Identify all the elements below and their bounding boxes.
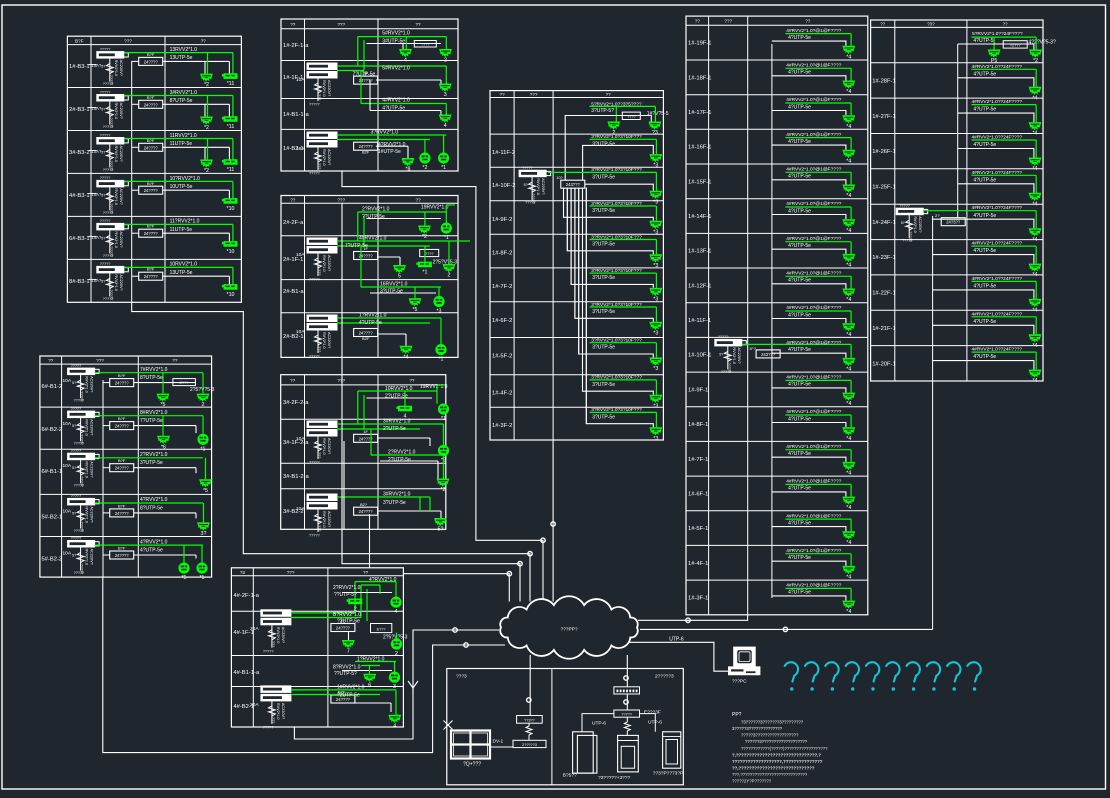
svg-text:?????: ????? [74, 442, 85, 446]
svg-text:RVV2*1.0: RVV2*1.0 [114, 188, 118, 205]
svg-text:???: ??? [271, 641, 275, 647]
svg-text:10A?: 10A? [92, 278, 102, 283]
svg-text:4?UTP-5e: 4?UTP-5e [788, 70, 811, 76]
svg-text:6#-B1-1: 6#-B1-1 [42, 469, 63, 475]
svg-text:3?RVV2*1.0?3?10F???: 3?RVV2*1.0?3?10F??? [591, 407, 642, 413]
svg-text:2#-2F-a: 2#-2F-a [283, 220, 304, 226]
svg-text:?????: ????? [103, 168, 114, 172]
svg-text:RVV2*1.0: RVV2*1.0 [276, 703, 280, 720]
svg-text:?????2Y?P???????: ?????2Y?P??????? [732, 779, 772, 784]
svg-text:4?UTP-5e: 4?UTP-5e [973, 142, 996, 148]
svg-text:4?RVV2*1.0: 4?RVV2*1.0 [140, 539, 168, 545]
svg-text:?????: ????? [309, 172, 320, 176]
svg-text:2?RVV2*1.0: 2?RVV2*1.0 [333, 585, 361, 591]
svg-text:RVV2*1.0: RVV2*1.0 [85, 506, 89, 523]
svg-text:3?UTP-5e: 3?UTP-5e [592, 345, 615, 351]
svg-text:*4: *4 [846, 193, 851, 199]
svg-text:3?RVV2*1.0?3?10F???: 3?RVV2*1.0?3?10F??? [591, 338, 642, 344]
svg-text:E???3F: E???3F [644, 709, 661, 715]
svg-text:4?UTP-5e: 4?UTP-5e [973, 71, 996, 77]
svg-text:?3?: ?3? [927, 22, 935, 27]
svg-text:3#RVV2*1.0: 3#RVV2*1.0 [170, 90, 198, 96]
svg-text:B2?: B2? [360, 502, 368, 507]
svg-text:AC220V?: AC220V? [90, 549, 94, 565]
svg-text:?????: ????? [103, 211, 114, 215]
svg-text:2?UTP-5e: 2?UTP-5e [383, 426, 406, 432]
svg-text:?????: ????? [902, 239, 913, 243]
svg-text:???: ??? [317, 346, 321, 352]
svg-text:4?UTP-5: 4?UTP-5 [973, 38, 993, 44]
svg-text:1#-25F-1: 1#-25F-1 [872, 185, 896, 191]
svg-text:1#-7F-2: 1#-7F-2 [492, 284, 512, 290]
svg-text:5?: 5? [101, 151, 105, 155]
svg-text:4?RVV2*1.0: 4?RVV2*1.0 [378, 142, 406, 148]
svg-text:5?: 5? [72, 381, 76, 385]
svg-text:AC220V?: AC220V? [327, 149, 331, 165]
svg-text:20A: 20A [250, 702, 259, 708]
svg-text:1#-6F-2: 1#-6F-2 [492, 318, 512, 324]
svg-text:1#-B3-1: 1#-B3-1 [69, 64, 90, 70]
svg-text:*4: *4 [1032, 343, 1037, 349]
svg-text:?????: ????? [309, 103, 320, 107]
svg-text:4?UTP-5e: 4?UTP-5e [788, 139, 811, 145]
svg-text:1#-13F-1: 1#-13F-1 [688, 249, 712, 255]
svg-text:5#-B2-1: 5#-B2-1 [42, 514, 63, 520]
svg-text:AC220V?: AC220V? [327, 332, 331, 348]
svg-text:4?UTP-5e: 4?UTP-5e [973, 107, 996, 113]
svg-text:8?UTP-5e: 8?UTP-5e [140, 505, 163, 511]
svg-text:5?: 5? [719, 352, 723, 356]
svg-text:??,???????????????????????????: ??,????????????????????????????? [732, 766, 815, 771]
svg-text:?????: ????? [74, 571, 85, 575]
svg-text:3?RVV2*1.0?3?10F???: 3?RVV2*1.0?3?10F??? [591, 302, 642, 308]
svg-text:4#RVV2*1.0?@1@F????: 4#RVV2*1.0?@1@F???? [786, 167, 841, 173]
svg-text:4#RVV2*1.0??24F????: 4#RVV2*1.0??24F???? [972, 241, 1023, 247]
svg-text:AC220V?: AC220V? [327, 255, 331, 271]
svg-text:5?: 5? [101, 108, 105, 112]
svg-text:?????: ????? [718, 335, 729, 339]
svg-text:*4: *4 [846, 263, 851, 269]
svg-text:*11: *11 [227, 81, 235, 87]
svg-text:4#RVV2*1.0??24F????: 4#RVV2*1.0??24F???? [972, 135, 1023, 141]
svg-text:3#-B3-2: 3#-B3-2 [69, 150, 90, 156]
svg-text:10UTP-5e: 10UTP-5e [170, 184, 193, 190]
svg-text:B2F: B2F [362, 150, 370, 155]
svg-text:?????: ????? [100, 133, 111, 137]
svg-text:???: ??? [317, 452, 321, 458]
svg-text:7#RVV2*1.0: 7#RVV2*1.0 [140, 367, 168, 373]
svg-text:*11: *11 [227, 167, 235, 173]
svg-text:4?UTP-5e: 4?UTP-5e [973, 284, 996, 290]
svg-text:24?3??: 24?3?? [946, 220, 961, 225]
svg-text:4#-B1-1-a: 4#-B1-1-a [233, 670, 260, 676]
svg-text:4#RVV2*1.0??24F????: 4#RVV2*1.0??24F???? [972, 347, 1023, 353]
svg-text:*4: *4 [846, 401, 851, 407]
svg-text:10A: 10A [63, 421, 72, 427]
svg-text:4#RVV2*1.0: 4#RVV2*1.0 [359, 235, 387, 241]
svg-text:?????: ????? [522, 166, 533, 170]
svg-text:2?????3: 2?????3 [522, 743, 537, 747]
svg-text:24????: 24???? [115, 553, 130, 558]
svg-text:AC220V?: AC220V? [119, 231, 123, 247]
svg-text:??: ?? [290, 197, 296, 202]
svg-text:20A: 20A [250, 626, 259, 632]
svg-text:AC220V?: AC220V? [90, 461, 94, 477]
svg-text:6: 6 [368, 682, 371, 688]
svg-text:RVV2*1.0: RVV2*1.0 [114, 231, 118, 248]
svg-text:24????: 24???? [359, 144, 374, 149]
svg-text:5#RVV2*1.0: 5#RVV2*1.0 [382, 66, 410, 72]
svg-text:?????: ????? [74, 484, 85, 488]
svg-text:19RVV2*1.0: 19RVV2*1.0 [421, 205, 449, 211]
svg-text:1#-3F-2: 1#-3F-2 [492, 423, 512, 429]
svg-text:*3: *3 [653, 163, 658, 169]
svg-text:13UTP-5e: 13UTP-5e [170, 55, 193, 61]
svg-text:4#RVV2*1.0?@1@F????: 4#RVV2*1.0?@1@F???? [786, 409, 841, 415]
svg-text:?Q+???: ?Q+??? [463, 762, 481, 768]
svg-text:*1: *1 [199, 575, 204, 581]
svg-text:3?UTP-5e: 3?UTP-5e [592, 309, 615, 315]
svg-text:??: ?? [409, 378, 415, 383]
svg-text:?????: ????? [103, 254, 114, 258]
svg-text:3#-2F-2-a: 3#-2F-2-a [283, 400, 309, 406]
svg-text:*4: *4 [1032, 201, 1037, 207]
svg-text:RVV2*1.0: RVV2*1.0 [85, 549, 89, 566]
svg-text:243???: 243??? [761, 352, 776, 357]
svg-text:B?F: B?F [118, 373, 126, 378]
svg-text:?????: ????? [71, 494, 82, 498]
svg-text:B?RVV2*1.0: B?RVV2*1.0 [333, 612, 361, 618]
svg-text:???: ??? [337, 22, 345, 27]
svg-text:4?UTP-5e: 4?UTP-5e [788, 278, 811, 284]
svg-text:3#RVV2*1.0: 3#RVV2*1.0 [383, 418, 411, 424]
svg-text:24????: 24???? [336, 626, 351, 631]
svg-text:*2: *2 [204, 125, 209, 131]
svg-text:AC220V?: AC220V? [119, 60, 123, 76]
svg-text:10RVV2*1.0: 10RVV2*1.0 [170, 262, 198, 268]
svg-text:???,??????????????????????????: ???,???????????????????????????? [732, 772, 808, 777]
svg-text:???: ??? [317, 163, 321, 169]
svg-text:RVV2*1.0: RVV2*1.0 [322, 332, 326, 349]
svg-text:AC220V?: AC220V? [119, 146, 123, 162]
svg-text:1#-23F-1: 1#-23F-1 [872, 255, 896, 261]
svg-text:5?: 5? [101, 236, 105, 240]
svg-text:11RVV2*1.0: 11RVV2*1.0 [170, 133, 197, 139]
svg-text:10A: 10A [63, 551, 72, 557]
svg-text:3: 3 [393, 684, 396, 690]
svg-text:1?RVV2*1.0: 1?RVV2*1.0 [359, 312, 387, 318]
svg-text:3?RVV2*1.0?3?10F???: 3?RVV2*1.0?3?10F??? [591, 134, 642, 140]
svg-text:RVV2*1.0: RVV2*1.0 [732, 347, 736, 364]
svg-text:5?: 5? [72, 554, 76, 558]
svg-text:4#RVV2*1.0??24F????: 4#RVV2*1.0??24F???? [972, 311, 1023, 317]
svg-text:6#-B3-1: 6#-B3-1 [69, 236, 90, 242]
svg-text:RVV2*1.0: RVV2*1.0 [913, 216, 917, 233]
svg-text:???: ??? [271, 717, 275, 723]
svg-text:RVV2*1.0: RVV2*1.0 [322, 80, 326, 97]
svg-text:2?: 2? [935, 213, 940, 218]
svg-text:*10: *10 [227, 249, 235, 255]
svg-text:8#-B3-1: 8#-B3-1 [69, 279, 90, 285]
svg-text:RVV2*1.0: RVV2*1.0 [85, 461, 89, 478]
svg-text:4#RVV2*1.0: 4#RVV2*1.0 [382, 97, 410, 103]
svg-text:????: ???? [425, 252, 433, 256]
svg-text:24????: 24???? [115, 466, 130, 471]
svg-text:*10: *10 [227, 292, 235, 298]
svg-text:4?UTP-5e: 4?UTP-5e [788, 174, 811, 180]
svg-text:4?UTP-5e: 4?UTP-5e [788, 416, 811, 422]
svg-text:??7??: ??7?? [621, 713, 632, 717]
svg-text:AC220V?: AC220V? [281, 627, 285, 643]
svg-text:??: ?? [415, 22, 421, 27]
svg-text:*1: *1 [438, 357, 443, 363]
svg-text:?????: ????? [100, 262, 111, 266]
svg-text:5?: 5? [72, 466, 76, 470]
svg-text:???: ??? [287, 570, 295, 575]
svg-text:???3: ???3 [456, 674, 467, 680]
svg-text:?????: ????? [103, 125, 114, 129]
svg-text:*1: *1 [200, 446, 205, 452]
svg-text:3?UTP-5e: 3?UTP-5e [592, 174, 615, 180]
svg-text:???: ??? [317, 94, 321, 100]
svg-text:?????: ????? [309, 278, 320, 282]
svg-text:1#-20F-1: 1#-20F-1 [872, 361, 896, 367]
svg-text:4?UTP-5e: 4?UTP-5e [788, 520, 811, 526]
svg-text:??: ?? [805, 19, 811, 24]
svg-text:4#RVV2*1.0??24F????: 4#RVV2*1.0??24F???? [972, 64, 1023, 70]
svg-text:???: ??? [317, 525, 321, 531]
svg-text:*4: *4 [846, 54, 851, 60]
svg-text:1#-8F-1: 1#-8F-1 [688, 422, 708, 428]
svg-text:?3: ?3 [240, 570, 246, 575]
svg-text:3?RVV2*1.0?3?10F???: 3?RVV2*1.0?3?10F??? [591, 234, 642, 240]
svg-text:10RVV2*1.0: 10RVV2*1.0 [385, 386, 413, 392]
svg-text:4#-2F-1-a: 4#-2F-1-a [233, 593, 259, 599]
svg-text:6#-B2-2: 6#-B2-2 [42, 427, 63, 433]
svg-text:1#-9F-1: 1#-9F-1 [688, 387, 708, 393]
svg-text:1#-12F-1: 1#-12F-1 [688, 283, 712, 289]
svg-text:B?F: B?F [118, 416, 126, 421]
svg-text:4#-B3-1: 4#-B3-1 [69, 193, 90, 199]
svg-text:4?UTP-5e: 4?UTP-5e [788, 555, 811, 561]
svg-text:*2: *2 [440, 487, 445, 493]
svg-text:3: 3 [444, 92, 447, 98]
svg-text:4#RVV2*1.0?@1@F????: 4#RVV2*1.0?@1@F???? [786, 63, 841, 69]
svg-text:*5: *5 [181, 575, 186, 581]
svg-text:DV-1: DV-1 [493, 739, 504, 745]
svg-text:UTP-6: UTP-6 [669, 637, 684, 643]
svg-text:4#RVV2*1.0?@1@F????: 4#RVV2*1.0?@1@F???? [786, 132, 841, 138]
svg-text:AC220V?: AC220V? [737, 347, 741, 363]
svg-text:?????: ????? [74, 529, 85, 533]
svg-text:*4: *4 [1032, 95, 1037, 101]
svg-text:?????: ????? [71, 536, 82, 540]
svg-text:2#-B1-a: 2#-B1-a [283, 289, 304, 295]
svg-text:4: 4 [393, 723, 396, 729]
svg-text:?????: ????? [899, 204, 910, 208]
svg-text:4#RVV2*1.0?@1@F????: 4#RVV2*1.0?@1@F???? [786, 236, 841, 242]
svg-text:???PC: ???PC [732, 679, 747, 685]
svg-text:2?UTP-5e: 2?UTP-5e [388, 457, 411, 463]
svg-text:1#-B1-1-a: 1#-B1-1-a [283, 112, 310, 118]
svg-text:*3: *3 [436, 309, 441, 315]
svg-text:4?RVV2*1.0: 4?RVV2*1.0 [140, 497, 168, 503]
svg-text:??: ?? [290, 22, 296, 27]
svg-text:4?UTP-5e: 4?UTP-5e [788, 382, 811, 388]
svg-text:24????: 24???? [115, 424, 130, 429]
svg-text:??: ?? [201, 38, 207, 43]
svg-text:10A?: 10A? [92, 235, 102, 240]
svg-text:10?: 10? [556, 175, 563, 180]
svg-text:8?RVV2*1.0: 8?RVV2*1.0 [333, 664, 361, 670]
svg-text:1#-14F-1: 1#-14F-1 [688, 214, 712, 220]
svg-text:5?RVV2*1.0??24F????: 5?RVV2*1.0??24F???? [972, 31, 1023, 37]
svg-text:*2: *2 [1033, 58, 1038, 64]
svg-text:5?: 5? [524, 183, 528, 187]
svg-text:1#-10F-1: 1#-10F-1 [688, 353, 712, 359]
svg-text:1#-17F-1: 1#-17F-1 [688, 110, 712, 116]
svg-text:1#-18F-1: 1#-18F-1 [688, 75, 712, 81]
svg-text:3?: 3? [201, 531, 207, 537]
svg-text:*3: *3 [653, 263, 658, 269]
svg-text:1#-26F-1: 1#-26F-1 [872, 149, 896, 155]
svg-text:1#-11F-1: 1#-11F-1 [688, 318, 711, 324]
svg-text:5: 5 [398, 274, 401, 280]
svg-text:10A: 10A [63, 463, 72, 469]
svg-text:??: ?? [363, 570, 369, 575]
svg-text:4?UTP-5e: 4?UTP-5e [788, 590, 811, 596]
svg-text:1#-15F-1: 1#-15F-1 [688, 179, 712, 185]
svg-text:4#RVV2*1.0??24F????: 4#RVV2*1.0??24F???? [972, 276, 1023, 282]
svg-text:4?UTP-5e: 4?UTP-5e [973, 177, 996, 183]
svg-text:4#RVV2*1.0?@1@F????: 4#RVV2*1.0?@1@F???? [786, 375, 841, 381]
svg-text:4?UTP-5e: 4?UTP-5e [973, 319, 996, 325]
svg-text:B?F: B?F [118, 458, 126, 463]
svg-text:??????3???????????????????: ??????3??????????????????? [745, 739, 808, 744]
svg-text:1#-16F-1: 1#-16F-1 [688, 145, 712, 151]
svg-text:4#RVV2*1.0?@1@F????: 4#RVV2*1.0?@1@F???? [786, 513, 841, 519]
svg-text:10A: 10A [63, 378, 72, 384]
svg-text:*4: *4 [846, 609, 851, 615]
svg-text:???: ??? [337, 197, 345, 202]
svg-text:?????: ????? [74, 399, 85, 403]
svg-text:AC220V?: AC220V? [119, 274, 123, 290]
svg-text:3#UTP-5e: 3#UTP-5e [382, 38, 405, 44]
svg-text:13UTP-5e: 13UTP-5e [170, 270, 193, 276]
svg-text:*4: *4 [846, 505, 851, 511]
svg-text:4?UTP-5e: 4?UTP-5e [788, 243, 811, 249]
svg-text:*4: *4 [846, 89, 851, 95]
svg-text:5#-B2-2: 5#-B2-2 [42, 557, 63, 563]
svg-text:?????: ????? [100, 176, 111, 180]
svg-text:B?F: B?F [118, 503, 126, 508]
svg-text:24????: 24???? [144, 59, 159, 64]
svg-text:4: 4 [444, 123, 447, 129]
svg-text:*1: *1 [441, 165, 446, 171]
svg-text:4: 4 [395, 609, 398, 615]
svg-text:*4: *4 [846, 332, 851, 338]
svg-text:RVV2*1.0: RVV2*1.0 [322, 149, 326, 166]
svg-text:?????: ????? [100, 90, 111, 94]
svg-text:*3: *3 [653, 297, 658, 303]
svg-text:B?F: B?F [118, 546, 126, 551]
svg-text:AC220V?: AC220V? [90, 376, 94, 392]
svg-text:??UTP-5?: ??UTP-5? [334, 671, 357, 677]
svg-text:?3?????+3???: ?3?????+3??? [598, 775, 630, 781]
svg-text:3?UTP-5e: 3?UTP-5e [592, 141, 615, 147]
svg-text:3?RVV2*1.0?3?10F???: 3?RVV2*1.0?3?10F??? [591, 201, 642, 207]
svg-text:2?RVV2*1.0: 2?RVV2*1.0 [140, 452, 168, 458]
svg-text:UTP-6: UTP-6 [592, 721, 606, 727]
svg-text:*3: *3 [653, 330, 658, 336]
svg-text:*4: *4 [846, 575, 851, 581]
svg-text:?????: ????? [71, 449, 82, 453]
svg-text:24????: 24???? [115, 381, 130, 386]
svg-text:*4: *4 [1032, 378, 1037, 384]
svg-text:10A: 10A [296, 146, 305, 152]
svg-text:11UTP-5e: 11UTP-5e [170, 227, 193, 233]
svg-text:2?RVV2*1.0: 2?RVV2*1.0 [388, 450, 416, 456]
svg-text:RVV2*1.0: RVV2*1.0 [322, 511, 326, 528]
svg-text:*4: *4 [846, 158, 851, 164]
svg-text:10A?: 10A? [92, 106, 102, 111]
svg-text:?????: ????? [263, 725, 274, 729]
svg-text:8?UTP-5e: 8?UTP-5e [170, 98, 193, 104]
svg-text:10A: 10A [296, 506, 305, 512]
svg-text:1#-11F-2: 1#-11F-2 [492, 150, 515, 156]
svg-text:10A?: 10A? [92, 63, 102, 68]
svg-text:*4: *4 [846, 297, 851, 303]
svg-text:AC220V?: AC220V? [281, 703, 285, 719]
svg-text:*4: *4 [1032, 131, 1037, 137]
svg-text:?????: ????? [71, 364, 82, 368]
svg-text:4?UTP-5e: 4?UTP-5e [973, 213, 996, 219]
svg-text:*4: *4 [403, 354, 408, 360]
svg-text:RVV2*1.0: RVV2*1.0 [114, 146, 118, 163]
svg-text:7?UTP-5e: 7?UTP-5e [140, 418, 163, 424]
svg-text:*2: *2 [204, 168, 209, 174]
svg-text:4#RVV2*1.0?@1@F????: 4#RVV2*1.0?@1@F???? [786, 28, 841, 34]
svg-text:*1: *1 [444, 235, 449, 241]
svg-text:4?UTP-5e: 4?UTP-5e [788, 104, 811, 110]
svg-text:1#UTP-5e: 1#UTP-5e [378, 149, 401, 155]
svg-text:???: ??? [337, 378, 345, 383]
svg-text:5?: 5? [438, 527, 444, 533]
svg-text:1#-19F-1: 1#-19F-1 [688, 41, 712, 47]
svg-text:4#RVV2*1.0?@1@F????: 4#RVV2*1.0?@1@F???? [786, 201, 841, 207]
svg-text:B?5??: B?5?? [563, 773, 577, 779]
svg-text:3#-B1-2-a: 3#-B1-2-a [283, 474, 310, 480]
svg-text:AC220V?: AC220V? [918, 216, 922, 232]
svg-text:*4: *4 [846, 367, 851, 373]
svg-text:AC220V?: AC220V? [541, 178, 545, 194]
svg-text:2: 2 [202, 402, 205, 408]
svg-text:7?UTP-5e: 7?UTP-5e [345, 243, 368, 249]
svg-text:*4: *4 [1032, 237, 1037, 243]
svg-text:1#-8F-2: 1#-8F-2 [492, 250, 512, 256]
svg-text:4#RVV2*1.0?@1@F????: 4#RVV2*1.0?@1@F???? [786, 444, 841, 450]
svg-text:RVV2*1.0: RVV2*1.0 [276, 627, 280, 644]
svg-text:4?UTP-5e: 4?UTP-5e [973, 248, 996, 254]
svg-text:4?UTP-5e: 4?UTP-5e [359, 320, 382, 326]
svg-text:1#-27F-1: 1#-27F-1 [872, 114, 896, 120]
svg-text:1#-28F-1: 1#-28F-1 [872, 78, 896, 84]
svg-text:RVV2*1.0: RVV2*1.0 [114, 103, 118, 120]
svg-text:1#-2F-1-a: 1#-2F-1-a [283, 43, 309, 49]
svg-text:1#?V?5-5: 1#?V?5-5 [647, 111, 669, 117]
svg-text:*4: *4 [846, 471, 851, 477]
svg-text:24????: 24???? [359, 509, 374, 514]
